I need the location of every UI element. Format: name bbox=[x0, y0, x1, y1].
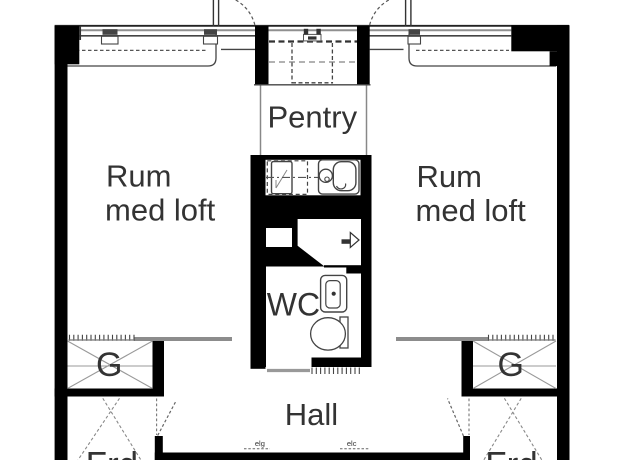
svg-text:med loft: med loft bbox=[416, 193, 527, 228]
svg-text:G: G bbox=[96, 346, 122, 384]
svg-text:Rum: Rum bbox=[417, 159, 482, 194]
svg-text:WC: WC bbox=[267, 286, 320, 322]
svg-text:med loft: med loft bbox=[105, 192, 216, 227]
svg-text:Frd: Frd bbox=[86, 446, 139, 460]
svg-text:G: G bbox=[497, 346, 523, 384]
svg-text:Frd: Frd bbox=[485, 446, 538, 460]
svg-text:Hall: Hall bbox=[285, 397, 338, 432]
svg-text:Rum: Rum bbox=[106, 158, 171, 193]
svg-text:Pentry: Pentry bbox=[267, 99, 357, 134]
svg-text:elg: elg bbox=[255, 439, 265, 448]
svg-text:elc: elc bbox=[347, 439, 357, 448]
